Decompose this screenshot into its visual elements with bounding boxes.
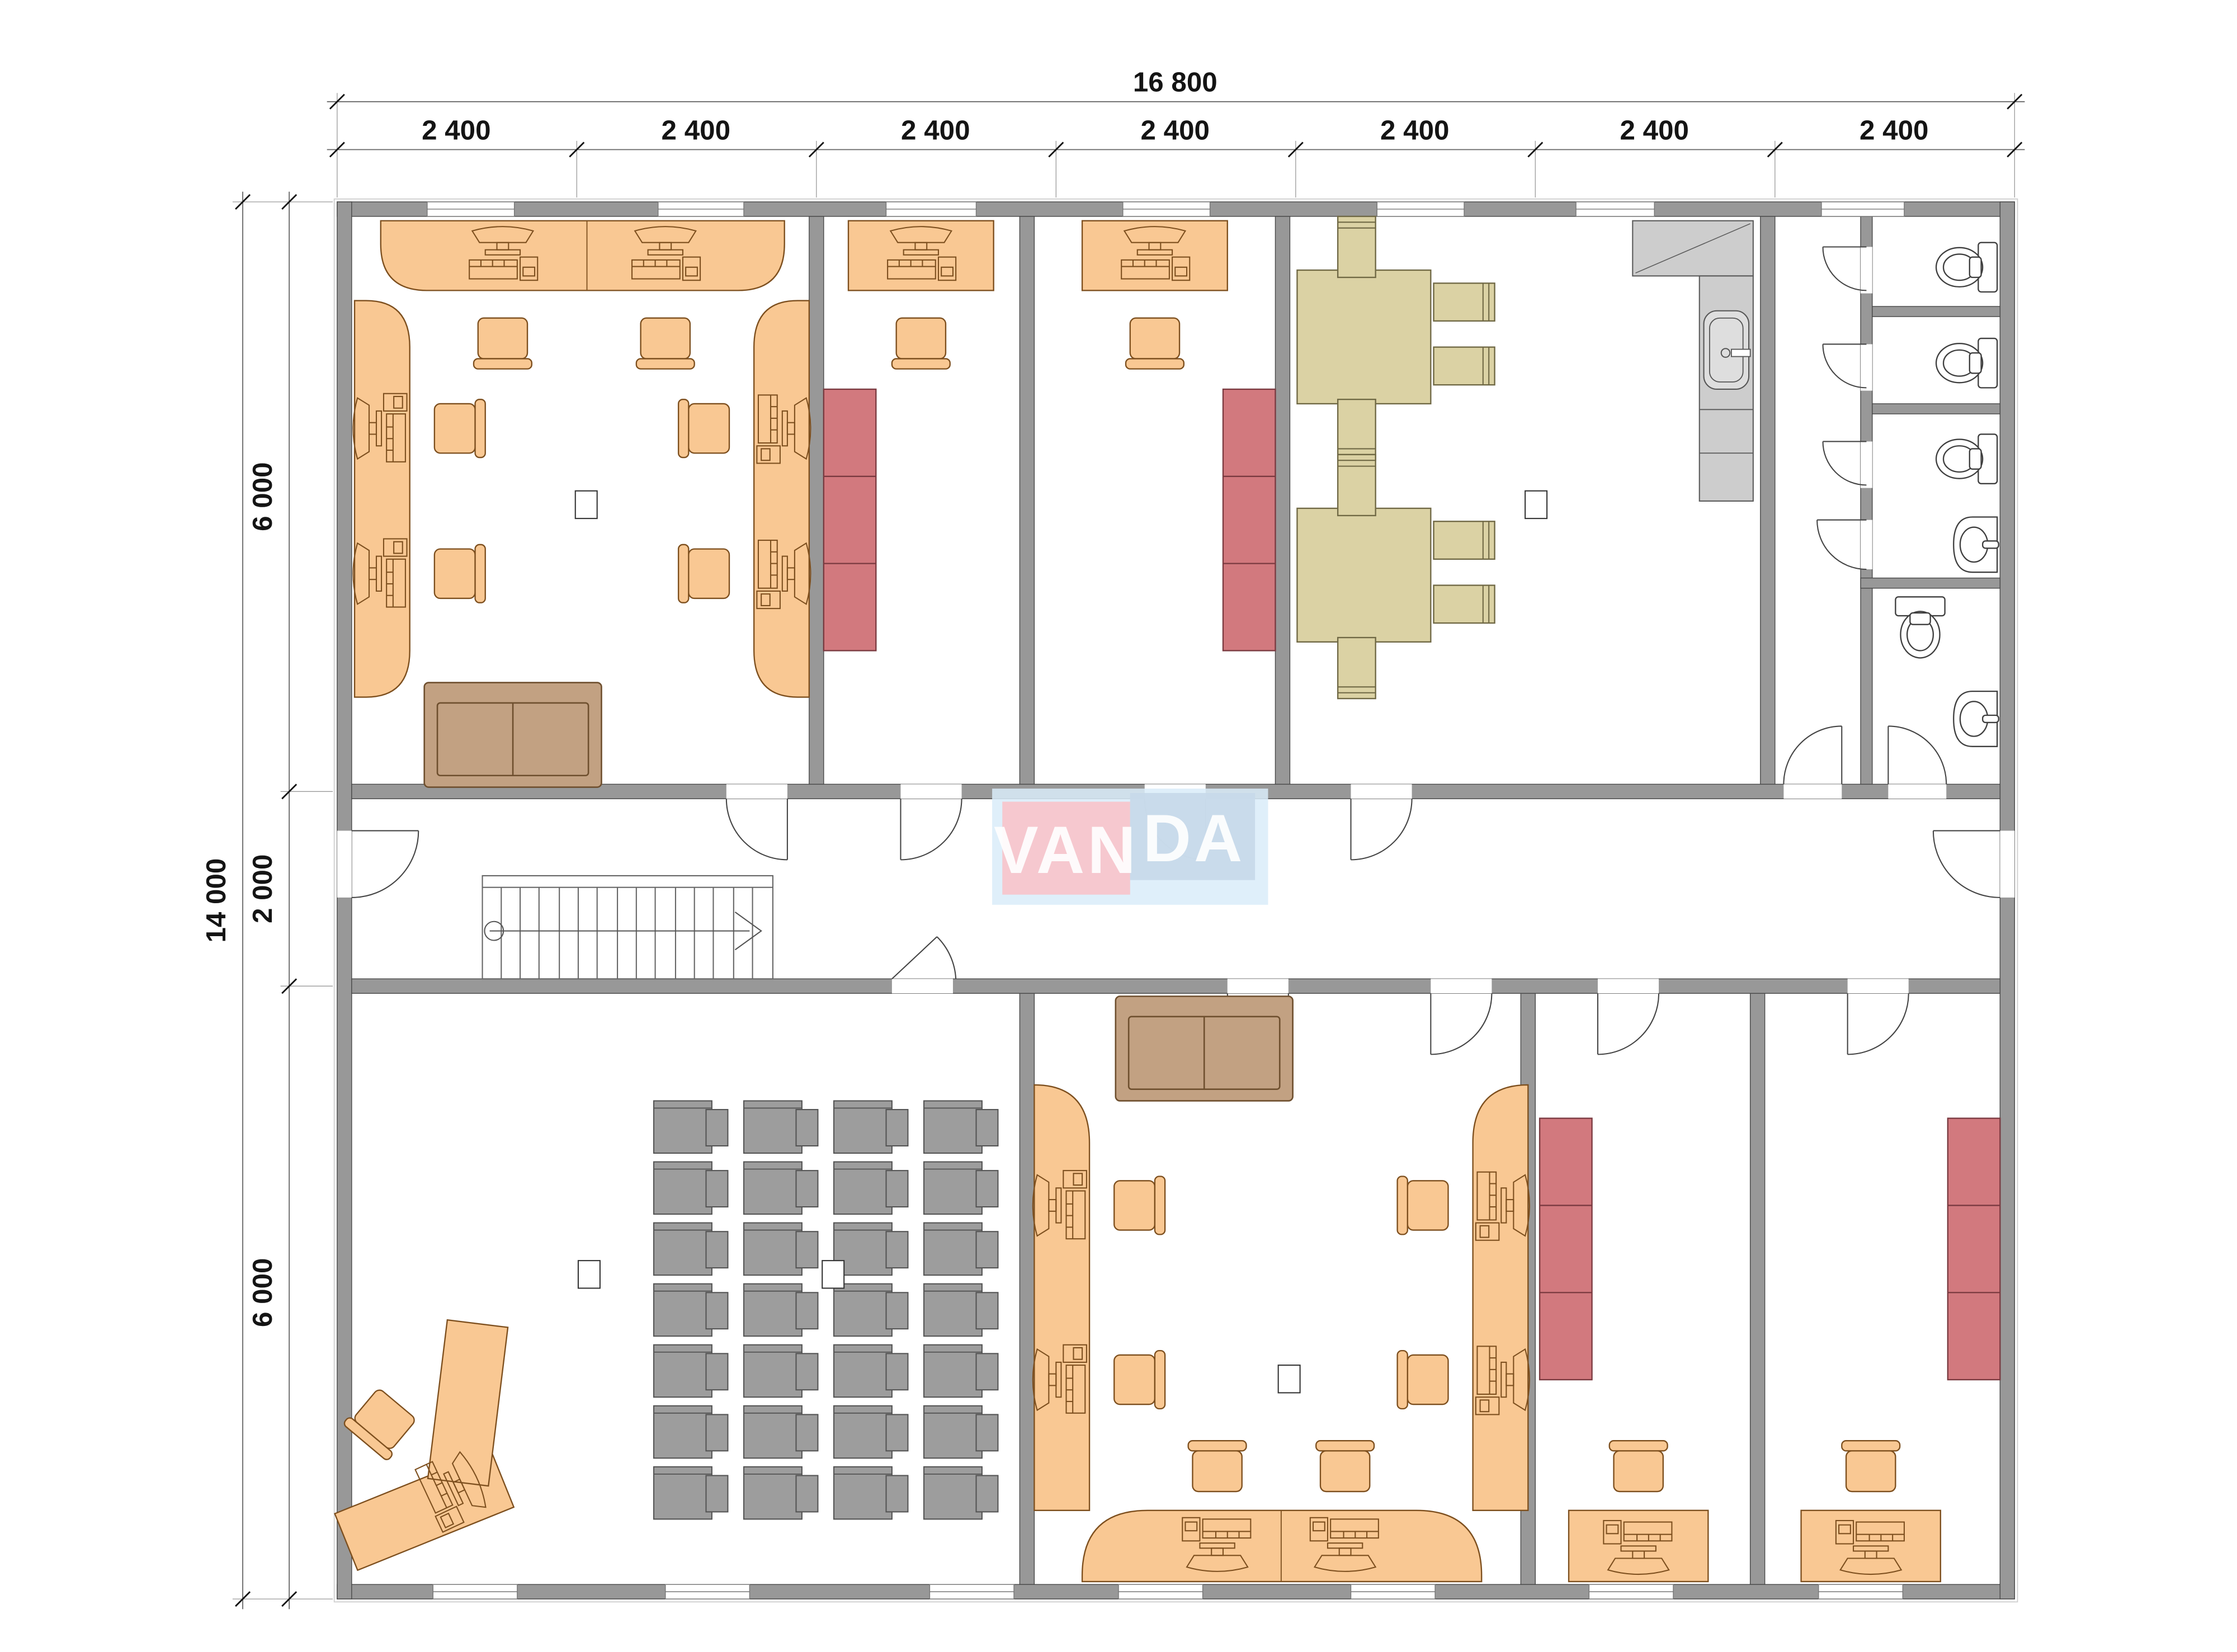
desk-counter-bottom bbox=[1082, 1511, 1481, 1582]
room-label-box bbox=[1525, 491, 1547, 518]
door-stall-3 bbox=[1823, 441, 1867, 485]
classroom-desk bbox=[744, 1284, 818, 1336]
classroom-desk bbox=[654, 1223, 728, 1275]
meeting-chair bbox=[1434, 347, 1495, 385]
wall-office3-meeting bbox=[1275, 216, 1290, 784]
kitchen-counter bbox=[1632, 221, 1753, 501]
classroom-desk bbox=[654, 1101, 728, 1153]
classroom-desk bbox=[834, 1284, 908, 1336]
desk bbox=[1082, 221, 1228, 291]
wall-classroom-office bbox=[1020, 993, 1034, 1584]
room-meeting-kitchen bbox=[1297, 216, 1753, 698]
door-office1 bbox=[726, 799, 787, 860]
meeting-chair bbox=[1338, 216, 1376, 277]
office-chair bbox=[1114, 1351, 1165, 1409]
room-label-box bbox=[822, 1261, 844, 1288]
office-chair bbox=[1398, 1177, 1448, 1235]
dim-left-seg-1: 6 000 bbox=[247, 462, 278, 531]
dim-top-seg-6: 2 400 bbox=[1620, 115, 1689, 145]
instructor-workstation bbox=[335, 1320, 514, 1570]
classroom-desk bbox=[924, 1406, 998, 1458]
wall-office2-office3 bbox=[1020, 216, 1034, 784]
wall-corridor-bottom bbox=[352, 979, 2000, 993]
dim-top-seg-7: 2 400 bbox=[1860, 115, 1928, 145]
toilet-block bbox=[1895, 243, 1998, 747]
kitchen-sink-icon bbox=[1704, 311, 1750, 389]
room-office-3 bbox=[1082, 221, 1275, 651]
office-chair bbox=[892, 318, 950, 369]
room-label-box bbox=[1278, 1365, 1300, 1393]
office-chair bbox=[636, 318, 695, 369]
meeting-chair bbox=[1338, 455, 1376, 516]
door-entrance-left bbox=[352, 830, 418, 897]
meeting-chair bbox=[1434, 586, 1495, 624]
room-label-box bbox=[575, 491, 597, 518]
dim-top-seg-3: 2 400 bbox=[901, 115, 970, 145]
dim-top-seg-1: 2 400 bbox=[422, 115, 490, 145]
room-classroom bbox=[335, 1101, 998, 1570]
classroom-desk bbox=[744, 1345, 818, 1397]
door-roomC bbox=[1598, 993, 1659, 1054]
room-open-office bbox=[353, 221, 810, 787]
classroom-desk bbox=[834, 1467, 908, 1519]
meeting-table bbox=[1297, 270, 1431, 404]
classroom-desk bbox=[834, 1162, 908, 1214]
office-chair bbox=[678, 545, 729, 603]
dim-left-seg-3: 6 000 bbox=[247, 1258, 278, 1327]
classroom-desk bbox=[654, 1284, 728, 1336]
room-office-middle bbox=[1033, 996, 1530, 1582]
classroom-desk bbox=[924, 1345, 998, 1397]
logo-text-left: VAN bbox=[994, 813, 1139, 888]
door-classroom bbox=[892, 937, 956, 979]
office-chair bbox=[1842, 1441, 1900, 1491]
classroom-desk bbox=[924, 1101, 998, 1153]
sofa bbox=[1116, 996, 1293, 1101]
office-chair bbox=[435, 545, 485, 603]
office-chair bbox=[1398, 1351, 1448, 1409]
toilet-icon bbox=[1936, 434, 1997, 483]
wall-stall-divider-1 bbox=[1872, 306, 2000, 317]
meeting-table bbox=[1297, 508, 1431, 642]
floor-plan-canvas: 16 800 2 400 2 400 2 400 2 400 2 400 2 4… bbox=[0, 0, 2237, 1652]
toilet-icon bbox=[1936, 243, 1997, 292]
wall-toilet-front bbox=[1861, 216, 1872, 784]
meeting-chair bbox=[1338, 399, 1376, 460]
desk bbox=[848, 221, 994, 291]
toilet-icon bbox=[1895, 597, 1945, 658]
door-wc-room bbox=[1888, 726, 1946, 784]
classroom-desk bbox=[924, 1284, 998, 1336]
classroom-desk bbox=[744, 1223, 818, 1275]
door-stall-2 bbox=[1823, 344, 1867, 388]
door-office-mid-right bbox=[1431, 993, 1492, 1054]
dim-top-seg-5: 2 400 bbox=[1380, 115, 1449, 145]
wall-stall-divider-2 bbox=[1872, 404, 2000, 414]
meeting-chair bbox=[1434, 283, 1495, 321]
sofa bbox=[424, 683, 602, 787]
corridor: VAN DA bbox=[483, 789, 1268, 979]
meeting-chair bbox=[1338, 638, 1376, 698]
classroom-desk bbox=[744, 1467, 818, 1519]
office-chair bbox=[1610, 1441, 1668, 1491]
classroom-desk bbox=[654, 1406, 728, 1458]
desk-counter-left bbox=[355, 301, 410, 697]
office-chair bbox=[1188, 1441, 1247, 1491]
classroom-desk bbox=[654, 1345, 728, 1397]
door-stall-1 bbox=[1823, 247, 1867, 290]
dim-top-total: 16 800 bbox=[1133, 67, 1217, 98]
office-chair bbox=[1126, 318, 1184, 369]
office-chair bbox=[1114, 1177, 1165, 1235]
dim-top-seg-4: 2 400 bbox=[1141, 115, 1210, 145]
desk-counter-right bbox=[1473, 1085, 1528, 1511]
classroom-desk bbox=[834, 1345, 908, 1397]
toilet-icon bbox=[1936, 338, 1997, 388]
desk-counter-top bbox=[381, 221, 785, 291]
door-roomD bbox=[1848, 993, 1909, 1054]
wall-roomC-roomD bbox=[1750, 993, 1765, 1584]
classroom-desk bbox=[834, 1406, 908, 1458]
office-chair bbox=[435, 399, 485, 457]
door-toilet-vestibule bbox=[1783, 726, 1842, 784]
classroom-desk bbox=[744, 1101, 818, 1153]
staircase bbox=[483, 876, 773, 979]
desk-counter-left bbox=[1034, 1085, 1089, 1511]
classroom-desk bbox=[924, 1162, 998, 1214]
room-office-2 bbox=[824, 221, 994, 651]
door-entrance-right bbox=[1933, 830, 2000, 897]
classroom-desk bbox=[924, 1223, 998, 1275]
room-office-bottom-d bbox=[1801, 1118, 2000, 1582]
classroom-desk bbox=[654, 1467, 728, 1519]
office-chair bbox=[1316, 1441, 1374, 1491]
wall-wc-room-divider bbox=[1861, 578, 2000, 588]
sink-icon bbox=[1953, 691, 1999, 747]
door-sink-zone bbox=[1817, 520, 1866, 569]
desk-counter-right bbox=[754, 301, 809, 697]
classroom-desk bbox=[834, 1223, 908, 1275]
wall-exterior-right bbox=[2000, 202, 2014, 1599]
cabinet-red bbox=[824, 389, 876, 650]
room-office-bottom-c bbox=[1540, 1118, 1708, 1582]
wall-meeting-toilets bbox=[1761, 216, 1775, 784]
office-chair bbox=[678, 399, 729, 457]
classroom-desk bbox=[744, 1162, 818, 1214]
door-office2 bbox=[900, 799, 961, 860]
vanda-logo: VAN DA bbox=[992, 789, 1268, 905]
dim-left-total: 14 000 bbox=[201, 858, 232, 943]
cabinet-red bbox=[1540, 1118, 1592, 1380]
classroom-desk bbox=[744, 1406, 818, 1458]
logo-text-right: DA bbox=[1143, 801, 1245, 876]
office-chair bbox=[474, 318, 532, 369]
door-meeting bbox=[1351, 799, 1412, 860]
wall-exterior-left bbox=[337, 202, 352, 1599]
dim-top-seg-2: 2 400 bbox=[662, 115, 730, 145]
wall-office1-office2 bbox=[809, 216, 824, 784]
cabinet-red bbox=[1223, 389, 1275, 650]
room-label-box bbox=[578, 1261, 600, 1288]
sink-icon bbox=[1953, 517, 1999, 573]
cabinet-red bbox=[1948, 1118, 2000, 1380]
classroom-desk bbox=[654, 1162, 728, 1214]
dim-left-seg-2: 2 000 bbox=[247, 855, 278, 923]
meeting-chair bbox=[1434, 521, 1495, 559]
classroom-desk bbox=[834, 1101, 908, 1153]
classroom-desk bbox=[924, 1467, 998, 1519]
office-chair bbox=[343, 1385, 420, 1461]
